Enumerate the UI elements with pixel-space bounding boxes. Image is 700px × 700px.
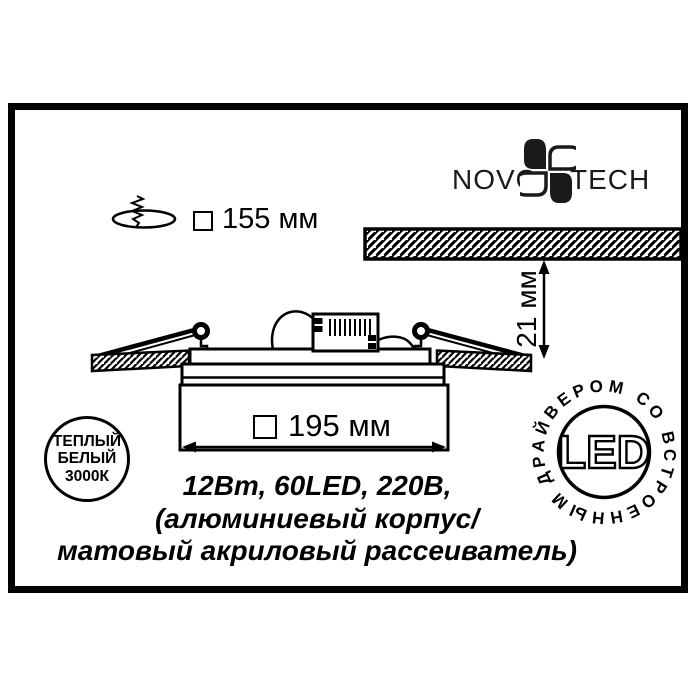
body-width-value: 195 мм bbox=[288, 408, 391, 444]
spec-line-3: матовый акриловый рассеиватель) bbox=[22, 535, 612, 568]
square-symbol bbox=[193, 211, 213, 231]
recess-depth-label: 21 мм bbox=[511, 254, 541, 364]
body-width-label: 195 мм bbox=[253, 408, 391, 444]
square-symbol bbox=[253, 415, 277, 439]
cutout-size-value: 155 мм bbox=[222, 203, 318, 236]
spec-line-2: (алюминиевый корпус/ bbox=[22, 503, 612, 536]
cutout-size-label: 155 мм bbox=[193, 203, 318, 236]
brand-name-right: TECH bbox=[570, 164, 650, 196]
led-driver-box bbox=[313, 314, 378, 351]
left-trim-flange bbox=[92, 351, 189, 372]
spec-text: 12Вт, 60LED, 220В, (алюминиевый корпус/ … bbox=[22, 470, 612, 568]
warm-white-line1: ТЕПЛЫЙ bbox=[53, 433, 121, 451]
fixture-cross-section-drawing bbox=[0, 0, 700, 700]
warm-white-line2: БЕЛЫЙ bbox=[58, 450, 117, 468]
novotech-flower-icon bbox=[520, 132, 576, 210]
spec-line-1: 12Вт, 60LED, 220В, bbox=[22, 470, 612, 503]
drill-cutout-icon bbox=[113, 196, 175, 228]
